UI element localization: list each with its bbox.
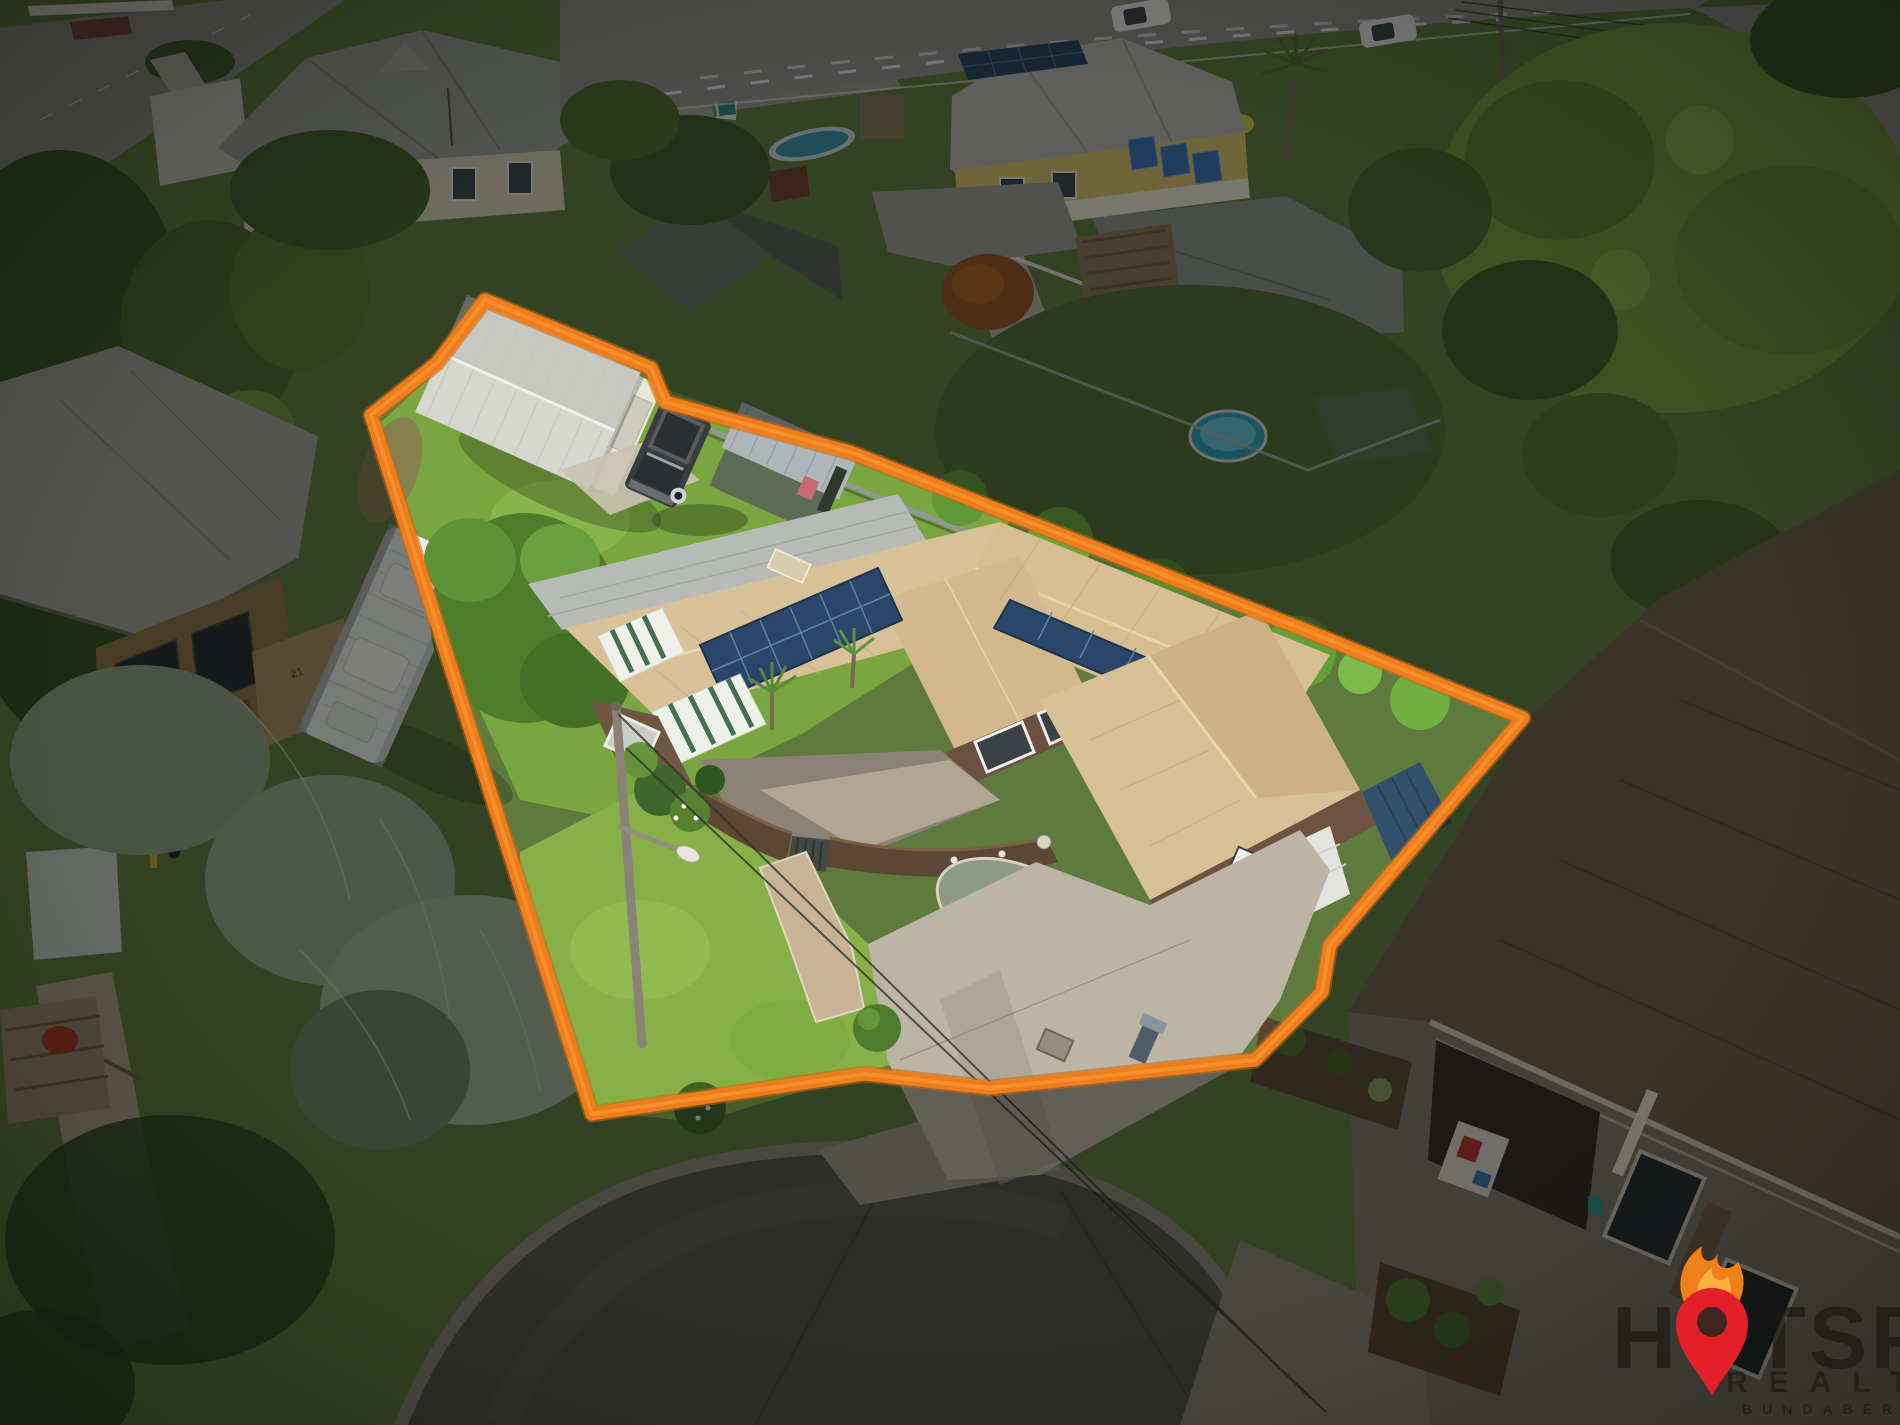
aerial-photo-canvas: 21 (0, 0, 1900, 1425)
watermark-text-left: H (1612, 1288, 1679, 1387)
pin-hole (1697, 1307, 1727, 1337)
aerial-photo: 21 (0, 0, 1900, 1425)
vignette (0, 0, 1900, 1425)
watermark-realty: REALTY (1726, 1366, 1900, 1399)
watermark-location: BUNDABERG (1742, 1401, 1900, 1417)
